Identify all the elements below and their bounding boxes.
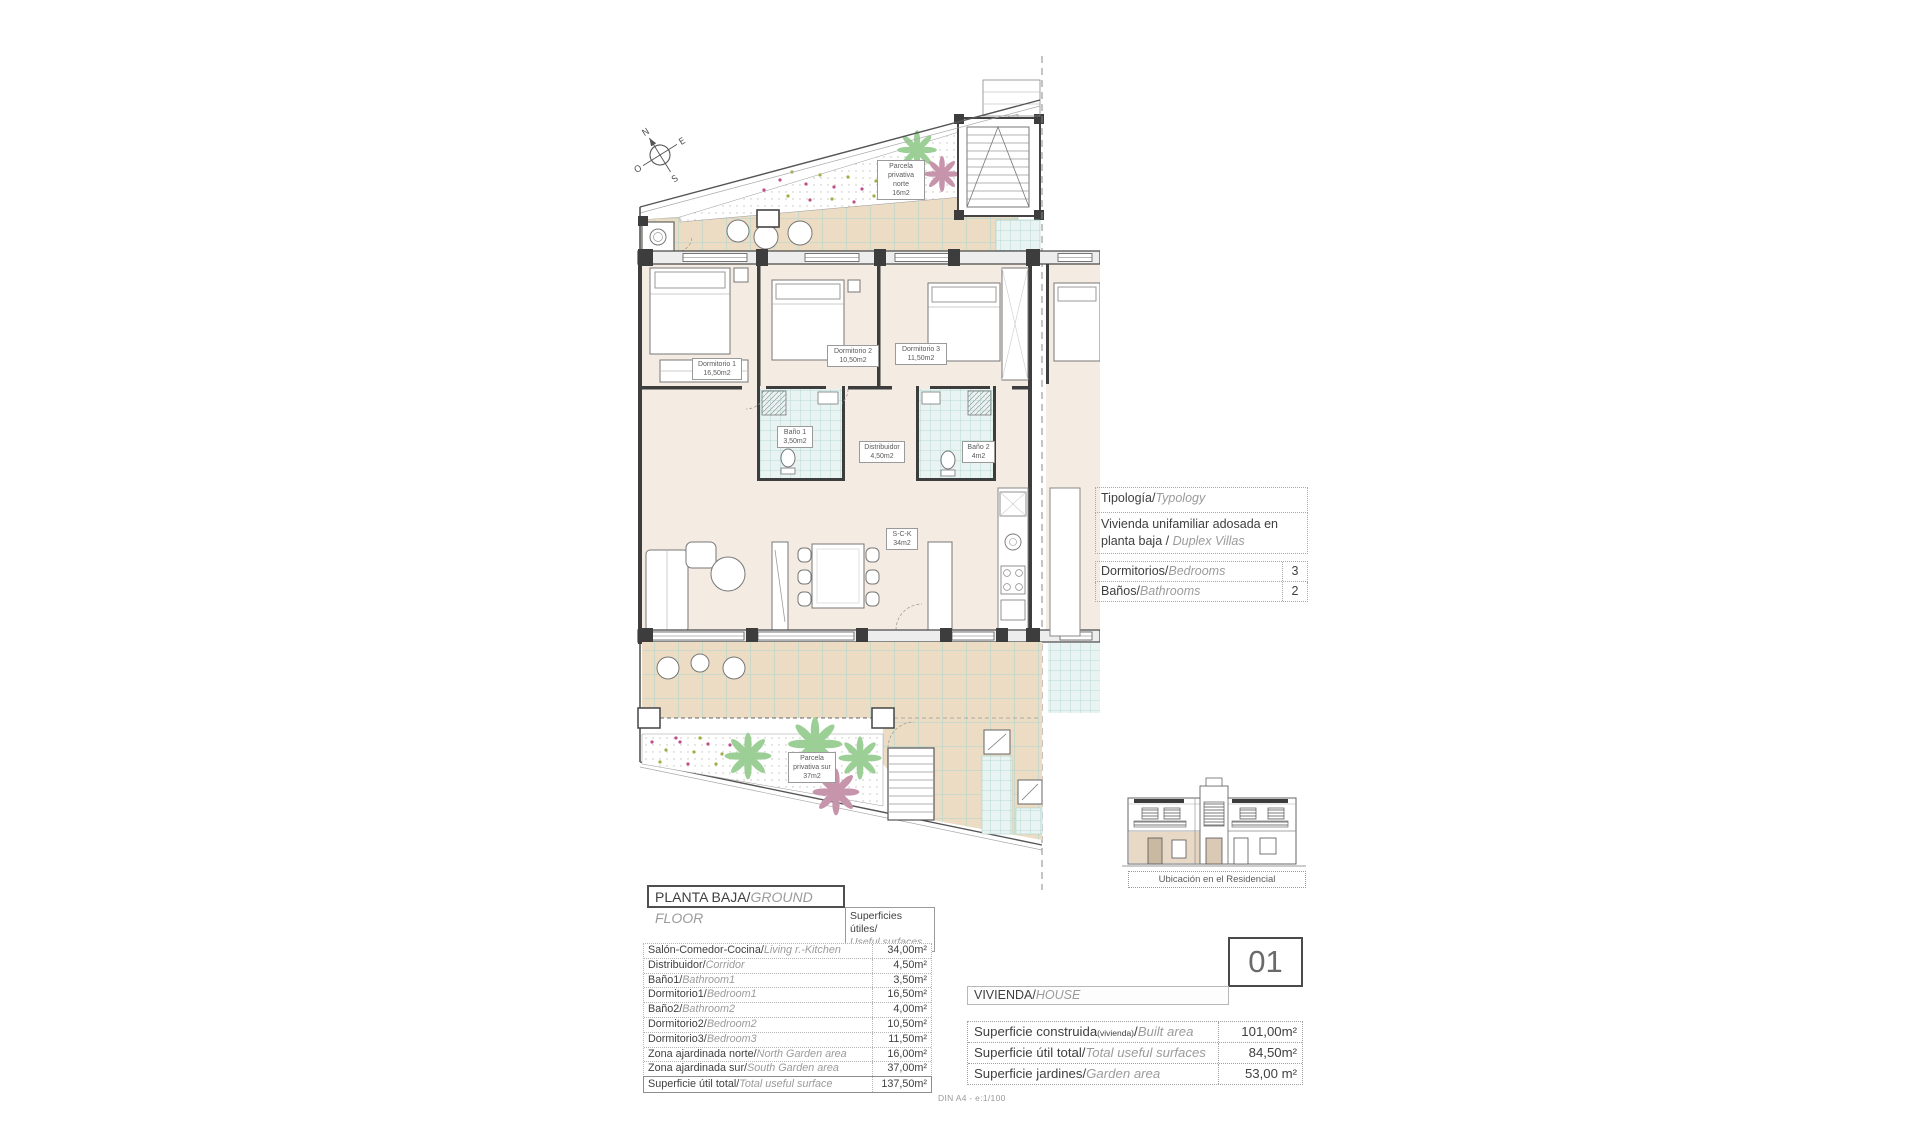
north-wall (638, 249, 1100, 266)
label-sck: S-C-K34m2 (886, 528, 918, 550)
summary-row-bathrooms: Baños/Bathrooms 2 (1095, 582, 1308, 602)
table-row: Zona ajardinada norte/North Garden area1… (644, 1048, 931, 1063)
bathrooms-value: 2 (1282, 582, 1307, 601)
palm-icon (725, 733, 772, 780)
bedrooms-value: 3 (1282, 562, 1307, 581)
floor-plan-drawing: N E S O (630, 50, 1100, 895)
label-parcela-sur: Parcelaprivativa sur37m2 (788, 752, 836, 783)
palm-icon (838, 736, 881, 779)
label-dormitorio-3: Dormitorio 311,50m2 (895, 343, 947, 365)
page: N E S O Parcelaprivativa norte16m2 Dormi… (0, 0, 1920, 1140)
palm-icon (924, 156, 960, 192)
table-row: Superficie útil total/Total useful surfa… (968, 1043, 1302, 1064)
table-row: Baño2/Bathroom24,00m² (644, 1003, 931, 1018)
svg-text:E: E (678, 136, 688, 148)
house-table: Superficie construida(vivienda)/Built ar… (967, 1021, 1303, 1085)
south-wall (638, 628, 1100, 644)
table-row: Dormitorio3/Bedroom311,50m² (644, 1033, 931, 1048)
label-dormitorio-2: Dormitorio 210,50m2 (827, 345, 879, 367)
table-row: Superficie jardines/Garden area 53,00 m² (968, 1064, 1302, 1084)
rooms-summary: Dormitorios/Bedrooms 3 Baños/Bathrooms 2 (1095, 561, 1308, 602)
tiled-patch (982, 756, 1012, 834)
bathrooms-label: Baños/Bathrooms (1096, 582, 1282, 601)
house-label-es: VIVIENDA/ (974, 988, 1036, 1002)
svg-text:O: O (633, 164, 644, 176)
house-bar: VIVIENDA/HOUSE (967, 986, 1229, 1005)
divider-post (872, 708, 894, 728)
table-row: Baño1/Bathroom13,50m² (644, 974, 931, 989)
divider-post (638, 708, 660, 728)
table-row: Dormitorio1/Bedroom116,50m² (644, 988, 931, 1003)
stairwell (954, 80, 1044, 220)
location-caption: Ubicación en el Residencial (1128, 871, 1306, 888)
elevation-drawing (1122, 776, 1306, 870)
typology-line2: planta baja / Duplex Villas (1101, 533, 1302, 550)
house-label-en: HOUSE (1036, 988, 1080, 1002)
table-row: Distribuidor/Corridor4,50m² (644, 959, 931, 974)
typology-header-es: Tipología/ (1101, 491, 1155, 505)
typology-block: Tipología/Typology Vivienda unifamiliar … (1095, 487, 1308, 554)
table-row-total: Superficie útil total/Total useful surfa… (643, 1076, 932, 1093)
svg-text:S: S (670, 174, 680, 186)
label-parcela-norte: Parcelaprivativa norte16m2 (877, 160, 925, 200)
surfaces-table: Salón-Comedor-Cocina/Living r.-Kitchen34… (643, 943, 932, 1093)
summary-row-bedrooms: Dormitorios/Bedrooms 3 (1095, 561, 1308, 582)
label-bano-2: Baño 24m2 (962, 441, 995, 463)
label-distribuidor: Distribuidor4,50m2 (859, 441, 905, 463)
table-row: Salón-Comedor-Cocina/Living r.-Kitchen34… (644, 944, 931, 959)
neighbor-terrace (1048, 643, 1100, 713)
floor-title: PLANTA BAJA/GROUND FLOOR (647, 885, 845, 908)
floor-plan: N E S O Parcelaprivativa norte16m2 Dormi… (630, 50, 1100, 895)
typology-header: Tipología/Typology (1095, 487, 1308, 513)
svg-text:N: N (641, 127, 652, 139)
bedrooms-label: Dormitorios/Bedrooms (1096, 562, 1282, 581)
scale-note: DIN A4 - e:1/100 (938, 1093, 1006, 1103)
bathroom-2 (919, 389, 993, 478)
entry-tiles (996, 220, 1040, 251)
floor-title-es: PLANTA BAJA/ (655, 889, 750, 905)
house-number-box: 01 (1228, 937, 1303, 987)
table-row: Dormitorio2/Bedroom210,50m² (644, 1018, 931, 1033)
label-dormitorio-1: Dormitorio 116,50m2 (692, 358, 742, 380)
south-terrace (642, 642, 1042, 718)
table-row: Zona ajardinada sur/South Garden area37,… (644, 1062, 931, 1077)
compass-icon: N E S O (630, 113, 703, 199)
tiled-patch (1016, 808, 1042, 834)
typology-line1: Vivienda unifamiliar adosada en (1101, 516, 1302, 533)
typology-header-en: Typology (1155, 491, 1205, 505)
typology-body: Vivienda unifamiliar adosada en planta b… (1095, 513, 1308, 554)
table-row: Superficie construida(vivienda)/Built ar… (968, 1022, 1302, 1043)
wardrobe-3 (1002, 268, 1028, 380)
kitchen-counter (998, 488, 1028, 636)
label-bano-1: Baño 13,50m2 (777, 426, 813, 448)
